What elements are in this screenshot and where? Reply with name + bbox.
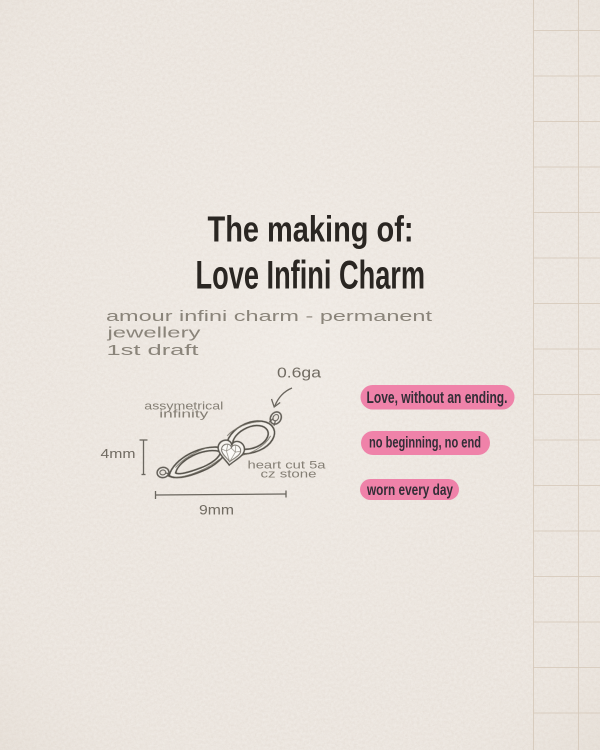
svg-text:cz stone: cz stone [261,469,317,481]
svg-text:The making of:: The making of: [208,209,414,250]
svg-text:1st draft: 1st draft [107,343,199,359]
svg-text:Love, without an ending.: Love, without an ending. [367,389,508,407]
svg-text:worn every day: worn every day [366,482,453,499]
svg-text:jewellery: jewellery [106,325,201,342]
svg-text:infinity: infinity [159,409,209,421]
svg-text:no beginning, no end: no beginning, no end [369,435,481,452]
svg-text:amour infini charm - permanent: amour infini charm - permanent [106,308,433,325]
svg-text:Love Infini Charm: Love Infini Charm [196,254,426,298]
svg-text:4mm: 4mm [101,446,136,461]
svg-text:0.6ga: 0.6ga [277,366,322,382]
svg-text:9mm: 9mm [199,502,234,518]
